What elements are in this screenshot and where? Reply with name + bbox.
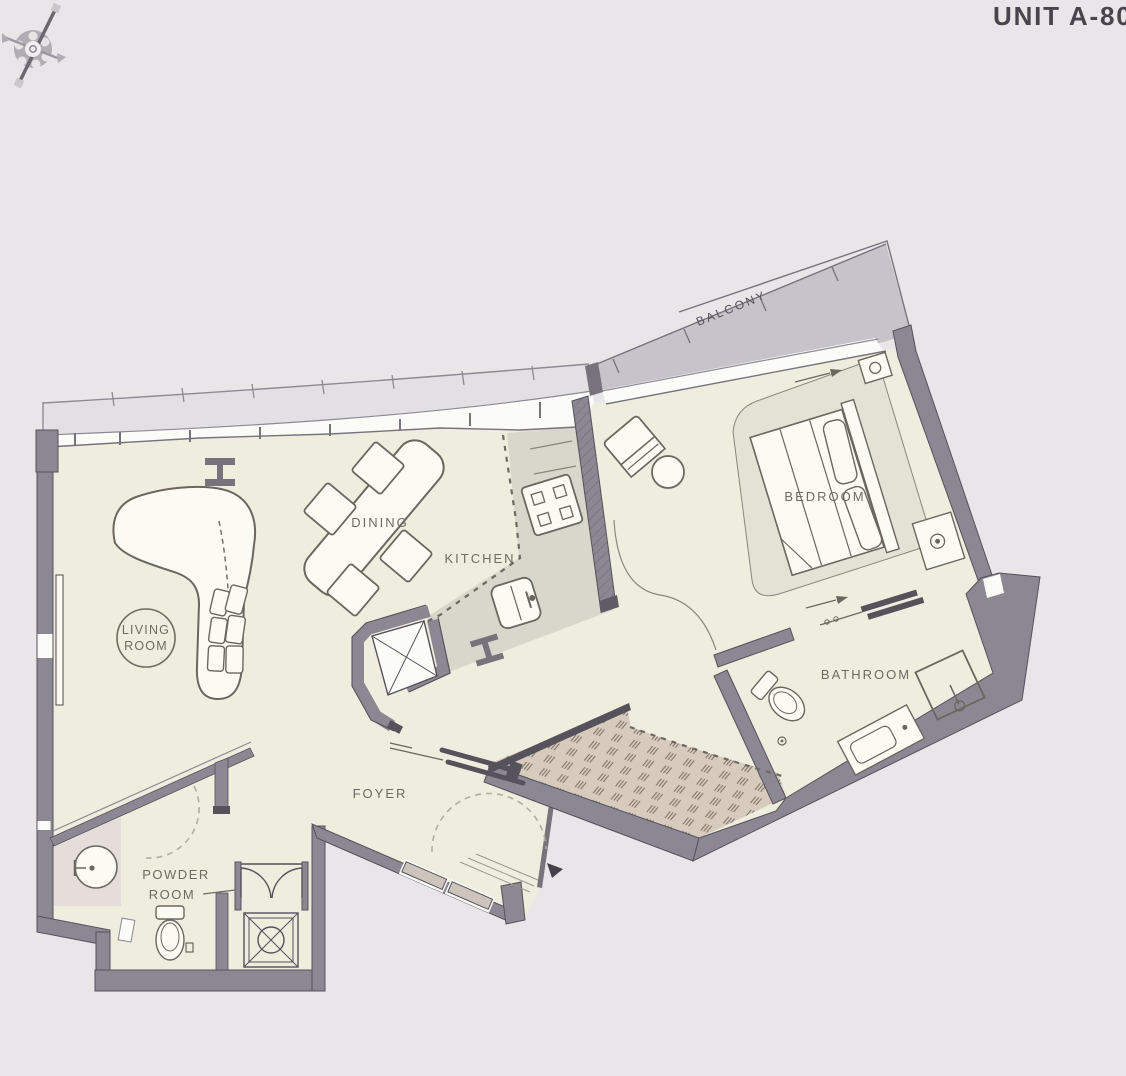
svg-text:POWDER: POWDER [142,867,210,882]
svg-text:ROOM: ROOM [124,639,168,653]
svg-text:ROOM: ROOM [149,887,195,902]
svg-text:FOYER: FOYER [353,786,408,801]
svg-text:DINING: DINING [351,515,409,530]
svg-text:BEDROOM: BEDROOM [784,489,865,504]
svg-text:LIVING: LIVING [122,623,170,637]
svg-text:BATHROOM: BATHROOM [821,667,911,682]
svg-text:KITCHEN: KITCHEN [444,551,515,566]
svg-text:UNIT A-800: UNIT A-800 [993,1,1126,31]
